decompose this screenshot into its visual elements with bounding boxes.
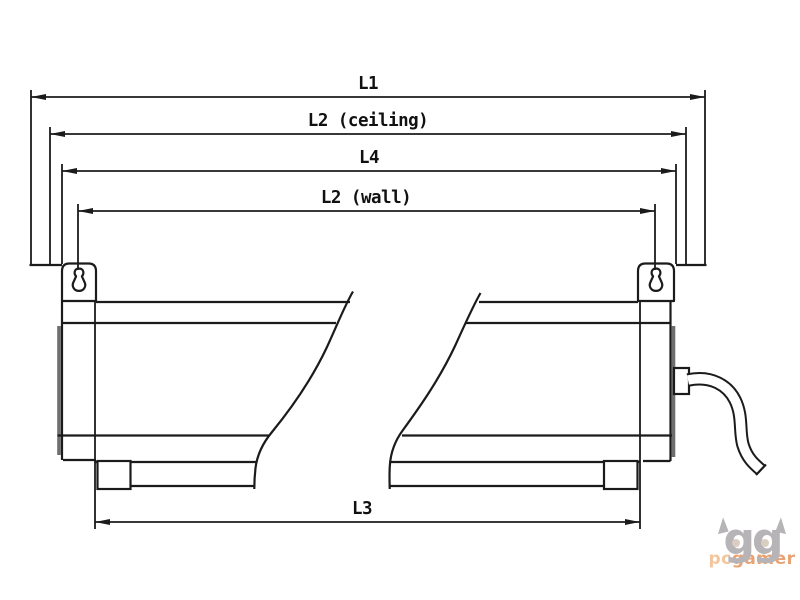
- arrowhead-right-icon: [661, 168, 676, 174]
- owl-eye-left-icon: [732, 539, 740, 547]
- arrowhead-right-icon: [690, 94, 705, 100]
- arrowhead-left-icon: [50, 131, 65, 137]
- keyhole-slot-left-icon: [73, 269, 85, 291]
- drawing-canvas: L1 L2 (ceiling) L4 L2 (wall): [0, 0, 800, 600]
- dimension-label-L2-ceiling: L2 (ceiling): [308, 111, 428, 131]
- dimension-label-L3: L3: [352, 499, 372, 519]
- watermark: gg pcgamer: [708, 522, 796, 588]
- break-line-right: [389, 293, 480, 489]
- power-cable: [688, 379, 766, 475]
- technical-drawing: L1 L2 (ceiling) L4 L2 (wall): [0, 0, 800, 600]
- keyhole-slot-right-icon: [650, 269, 662, 291]
- arrowhead-right-icon: [640, 208, 655, 214]
- mounting-foot-right: [604, 461, 638, 489]
- arrowhead-left-icon: [62, 168, 77, 174]
- mounting-foot-left: [98, 461, 131, 489]
- break-line-left: [254, 292, 353, 490]
- dimension-L1: L1: [31, 74, 705, 265]
- cable-gland: [674, 368, 689, 394]
- arrowhead-right-icon: [625, 519, 640, 525]
- dimension-L2-wall: L2 (wall): [78, 188, 655, 270]
- cable-core: [688, 379, 761, 470]
- dimension-L3: L3: [95, 302, 640, 529]
- dimension-label-L1: L1: [358, 74, 378, 94]
- dimension-label-L2-wall: L2 (wall): [321, 188, 411, 208]
- dimension-label-L4: L4: [359, 148, 379, 168]
- arrowhead-left-icon: [78, 208, 93, 214]
- watermark-owl-logo: gg: [708, 522, 796, 558]
- arrowhead-left-icon: [31, 94, 46, 100]
- owl-eye-right-icon: [761, 539, 769, 547]
- arrowhead-left-icon: [95, 519, 110, 525]
- luminaire-body: [30, 264, 767, 490]
- owl-horn-right-icon: [775, 517, 789, 534]
- arrowhead-right-icon: [671, 131, 686, 137]
